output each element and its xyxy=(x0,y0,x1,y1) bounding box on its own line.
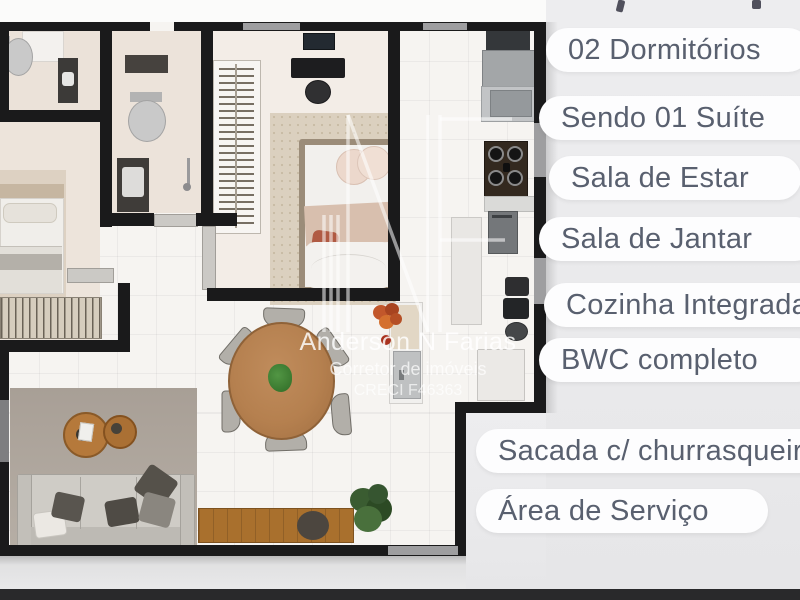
sofa-armrest-left xyxy=(18,475,32,545)
watermark-license: CRECI F46363 xyxy=(283,382,533,400)
wall-bedroom2-bottom xyxy=(0,340,130,352)
fridge-top xyxy=(486,30,530,50)
window-top-1 xyxy=(243,23,300,30)
wall-bathroom1-bottom xyxy=(0,110,112,122)
sofa-pillow-gray xyxy=(138,491,177,528)
coffee-table-item-2 xyxy=(111,423,122,434)
suite-tv xyxy=(303,33,335,50)
top-strip xyxy=(0,0,546,22)
plant-pot-leaf-4 xyxy=(368,484,388,504)
sofa-armrest-right xyxy=(180,475,194,545)
feature-pill-cozinha: Cozinha Integrada xyxy=(544,283,800,327)
watermark-role: Corretor de imóveis xyxy=(283,359,533,380)
sofa xyxy=(17,474,195,546)
balcony-glass-door xyxy=(388,546,458,555)
plant-pot-leaf-3 xyxy=(354,506,382,532)
bedroom2-door xyxy=(67,268,114,283)
watermark-text-block: Anderson N Farias Corretor de imóveis CR… xyxy=(283,328,533,400)
wood-bench xyxy=(198,508,354,543)
wall-top-gap xyxy=(150,22,174,31)
suite-desk xyxy=(291,58,345,78)
feature-pill-dormitorios: 02 Dormitórios xyxy=(546,28,800,72)
bath2-shelf xyxy=(125,55,168,73)
feature-pill-sala-jantar: Sala de Jantar xyxy=(539,217,800,261)
fridge xyxy=(482,50,538,88)
suite-door xyxy=(202,226,216,290)
feature-pill-servico: Área de Serviço xyxy=(476,489,768,533)
watermark-nf-logo xyxy=(300,105,530,340)
bedroom2-dresser xyxy=(0,297,102,339)
bedroom2-pillow xyxy=(3,203,57,223)
feature-pill-bwc: BWC completo xyxy=(539,338,800,382)
wall-vertical-a xyxy=(100,22,112,227)
window-left-lower xyxy=(0,400,9,462)
bath2-vanity-sink xyxy=(122,167,144,197)
bath2-toilet-bowl xyxy=(128,100,166,142)
bedroom2-headboard xyxy=(0,184,64,198)
coffee-table-card xyxy=(78,422,94,442)
desk-chair xyxy=(305,80,331,104)
plan-shadow-bottom xyxy=(0,556,466,565)
wall-left-top xyxy=(0,22,9,122)
shower-head xyxy=(187,158,190,186)
bedroom2-throw xyxy=(0,254,62,270)
sofa-pillow-dark-2 xyxy=(104,496,140,527)
cropped-text-mark-2 xyxy=(752,0,761,9)
wardrobe-rail xyxy=(235,64,237,228)
bench-cushion xyxy=(297,511,329,540)
wall-suite-left xyxy=(201,22,213,226)
wall-bath2-bottom-left xyxy=(100,213,154,226)
feature-pill-sacada: Sacada c/ churrasqueira xyxy=(476,429,800,473)
feature-pill-suite: Sendo 01 Suíte xyxy=(539,96,800,140)
feature-pill-sala-estar: Sala de Estar xyxy=(549,156,800,200)
shower-head-dot xyxy=(183,183,191,191)
real-estate-flyer: Anderson N Farias Corretor de imóveis CR… xyxy=(0,0,800,600)
window-top-2 xyxy=(423,23,467,30)
wall-step-vertical xyxy=(455,402,466,547)
wall-step-horizontal xyxy=(455,402,546,413)
bathroom2-door xyxy=(154,214,198,227)
bottom-bar xyxy=(0,589,800,600)
vanity-sink xyxy=(62,72,74,86)
watermark-name: Anderson N Farias xyxy=(283,328,533,357)
